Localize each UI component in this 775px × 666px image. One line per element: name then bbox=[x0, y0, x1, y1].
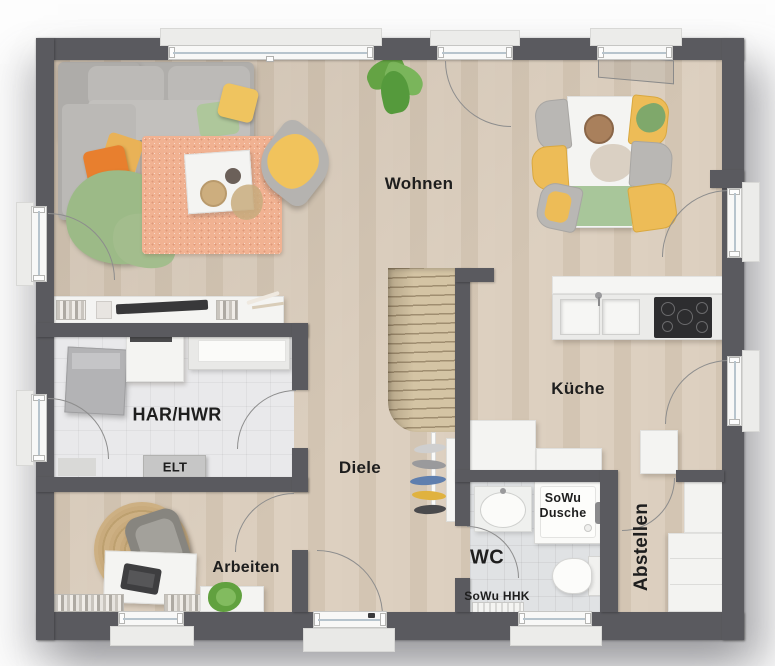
window-wc-bottom bbox=[518, 611, 592, 626]
entrance-door bbox=[313, 611, 387, 628]
wall-abstellen-top bbox=[676, 470, 724, 482]
wall-exterior-right bbox=[722, 38, 744, 640]
burner bbox=[661, 302, 675, 316]
books-row bbox=[164, 594, 202, 612]
burner bbox=[677, 309, 693, 325]
staircase bbox=[388, 268, 456, 432]
label-sowu-line2: Dusche bbox=[540, 506, 587, 521]
room-label-wc: WC bbox=[470, 547, 504, 570]
vase bbox=[225, 168, 241, 184]
entrance-step bbox=[303, 628, 395, 652]
kitchen-tall-cabinet bbox=[467, 420, 536, 474]
toilet bbox=[552, 558, 592, 594]
window-glass bbox=[734, 193, 736, 253]
window-glass bbox=[734, 361, 736, 421]
window-sill bbox=[110, 626, 194, 646]
wall-living-har bbox=[36, 323, 308, 337]
window-har-left bbox=[31, 394, 47, 462]
shelf-line bbox=[670, 558, 722, 559]
window-sill bbox=[160, 28, 382, 46]
burner bbox=[696, 321, 708, 333]
door-handle bbox=[368, 613, 375, 618]
window-sill bbox=[742, 350, 760, 432]
floor-mat bbox=[58, 458, 96, 476]
window-glass bbox=[173, 52, 369, 54]
window-handle bbox=[266, 56, 274, 62]
books-row bbox=[54, 594, 124, 612]
kitchen-upper-strip bbox=[552, 276, 723, 294]
terrace-door-left bbox=[31, 206, 47, 282]
room-label-wohnen: Wohnen bbox=[385, 174, 454, 194]
wall-wc-abstellen bbox=[600, 470, 618, 612]
window-glass bbox=[123, 618, 179, 620]
plant-green-highlight bbox=[216, 588, 236, 606]
label-sowu-hhk: SoWu HHK bbox=[464, 589, 530, 603]
window-glass bbox=[442, 52, 508, 54]
label-sowu-line1: SoWu bbox=[540, 491, 587, 506]
window-glass bbox=[38, 399, 40, 457]
utility-shelf-inner bbox=[198, 340, 286, 362]
wall-exterior-left bbox=[36, 38, 54, 640]
terrace-door-top bbox=[437, 45, 513, 60]
decor-bowl bbox=[584, 114, 614, 144]
floor-plan: Wohnen Küche HAR/HWR ELT Diele Arbeiten … bbox=[0, 0, 775, 666]
label-sowu-dusche: SoWu Dusche bbox=[540, 491, 587, 522]
sink-basin bbox=[602, 299, 640, 335]
room-label-kueche: Küche bbox=[551, 379, 604, 399]
wall-stair-wc bbox=[455, 268, 470, 526]
shelf-line bbox=[670, 584, 722, 585]
kitchen-cabinet bbox=[640, 430, 678, 474]
wall-diele-left bbox=[292, 550, 308, 612]
room-label-har-hwr: HAR/HWR bbox=[132, 405, 221, 426]
woven-tray bbox=[200, 180, 227, 207]
kitchen-door-right bbox=[727, 356, 742, 426]
window-sill bbox=[742, 182, 760, 262]
label-elt: ELT bbox=[163, 460, 188, 475]
window-glass bbox=[523, 618, 587, 620]
books bbox=[216, 300, 238, 320]
washing-machine-top bbox=[72, 353, 120, 369]
burner bbox=[696, 302, 708, 314]
wall-diele-left bbox=[292, 323, 308, 390]
basin-faucet bbox=[500, 488, 506, 494]
wall-stair-stub bbox=[455, 268, 494, 282]
burner bbox=[662, 321, 673, 332]
window-sill bbox=[590, 28, 682, 46]
storage-box bbox=[96, 301, 112, 319]
wall-wc-top bbox=[455, 470, 604, 482]
faucet-stem bbox=[598, 297, 600, 306]
terrace-door-right bbox=[727, 188, 742, 258]
wall-diele-left bbox=[292, 448, 308, 492]
shower-drain bbox=[584, 524, 592, 532]
window-sill bbox=[430, 30, 520, 46]
room-label-arbeiten: Arbeiten bbox=[212, 559, 279, 577]
window-glass bbox=[38, 211, 40, 277]
storage-shelf bbox=[668, 533, 724, 612]
room-label-abstellen: Abstellen bbox=[631, 503, 653, 591]
door-glass bbox=[318, 619, 382, 621]
dining-chair-gray bbox=[628, 141, 673, 190]
washbasin bbox=[480, 492, 526, 528]
storage-shelf bbox=[684, 480, 724, 533]
dining-chair-gray bbox=[533, 98, 572, 151]
books bbox=[56, 300, 86, 320]
room-label-diele: Diele bbox=[339, 458, 381, 478]
window-arbeiten-bottom bbox=[118, 611, 184, 626]
wall-har-arbeiten bbox=[36, 477, 308, 492]
window-glass bbox=[602, 52, 668, 54]
wall-pier bbox=[710, 170, 744, 188]
window-dining-top bbox=[597, 45, 673, 60]
sink-basin bbox=[560, 299, 600, 335]
window-sill bbox=[510, 626, 602, 646]
